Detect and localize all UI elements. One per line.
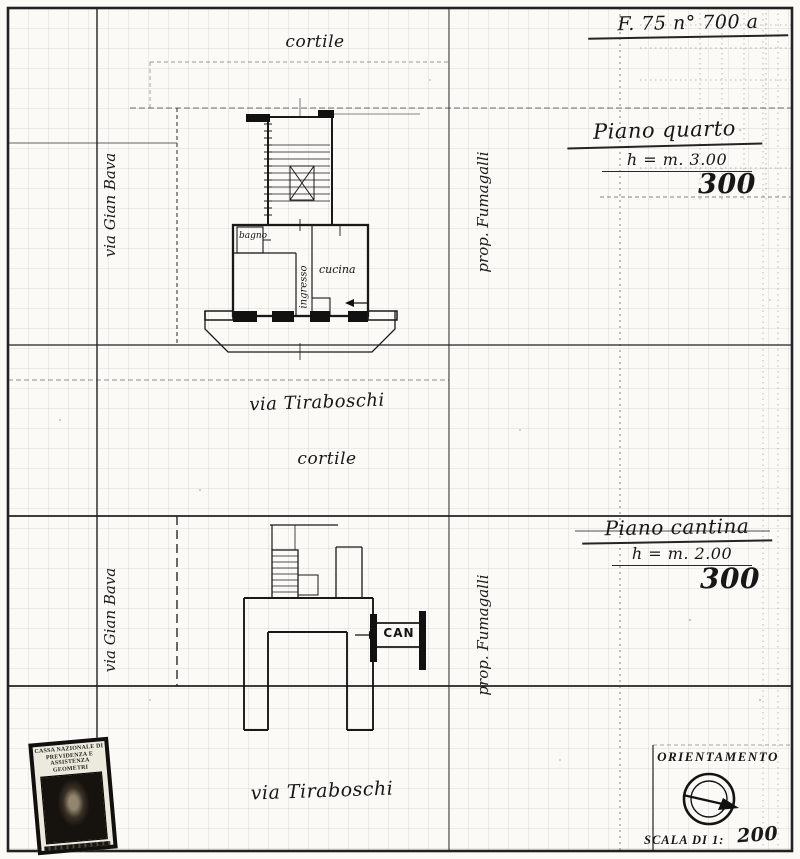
courtyard-label-top: cortile: [255, 32, 375, 52]
orientation-title: ORIENTAMENTO: [650, 749, 786, 765]
entrance-arrow-icon: [345, 299, 367, 307]
cellar-box: [355, 611, 426, 670]
scale-value: 200: [736, 823, 779, 848]
upper-plan-title: Piano quarto: [567, 115, 763, 149]
street-label-left-upper: via Gian Bava: [101, 153, 119, 258]
compass-icon: [683, 774, 739, 824]
upper-plan-scale-number: 300: [692, 169, 762, 200]
cellar-walls: [244, 547, 377, 730]
folio-reference: F. 75 n° 700 a: [588, 10, 788, 39]
courtyard-label-middle: cortile: [282, 449, 372, 469]
owner-label-right-upper: prop. Fumagalli: [474, 151, 492, 272]
stairwell-lower: [270, 525, 338, 598]
room-label-kitchen: cucina: [319, 263, 356, 276]
lower-plan-title: Piano cantina: [582, 513, 772, 544]
scanned-plan-sheet: F. 75 n° 700 a cortile Piano quarto h = …: [0, 0, 800, 859]
stamp-portrait: [40, 771, 108, 844]
floorplan-piano-quarto: [205, 98, 420, 360]
stairwell-upper: [246, 98, 420, 225]
scan-noise: [59, 79, 771, 761]
scale-label: SCALA DI 1:: [644, 833, 724, 848]
owner-label-right-lower: prop. Fumagalli: [474, 574, 492, 695]
room-label-hall: ingresso: [299, 265, 310, 308]
room-label-bath: bagno: [239, 231, 267, 241]
revenue-stamp: CASSA NAZIONALE DI PREVIDENZA E ASSISTEN…: [28, 737, 117, 856]
balcony-upper: [205, 311, 397, 360]
street-label-left-lower: via Gian Bava: [101, 568, 119, 673]
cellar-label: CAN: [380, 626, 418, 640]
lower-plan-scale-number: 300: [695, 562, 765, 595]
